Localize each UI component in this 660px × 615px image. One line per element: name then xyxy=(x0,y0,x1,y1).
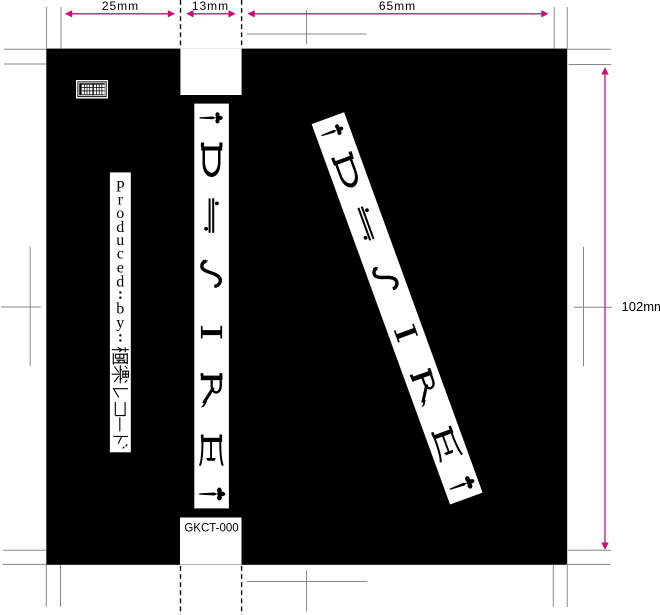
svg-text:y: y xyxy=(116,314,124,331)
svg-text:25mm: 25mm xyxy=(102,0,139,13)
svg-text:GKCT-000: GKCT-000 xyxy=(184,523,238,535)
svg-text:102mm: 102mm xyxy=(622,299,660,314)
svg-text:65mm: 65mm xyxy=(379,0,416,13)
svg-text:d: d xyxy=(116,274,124,291)
svg-text:13mm: 13mm xyxy=(192,0,229,13)
